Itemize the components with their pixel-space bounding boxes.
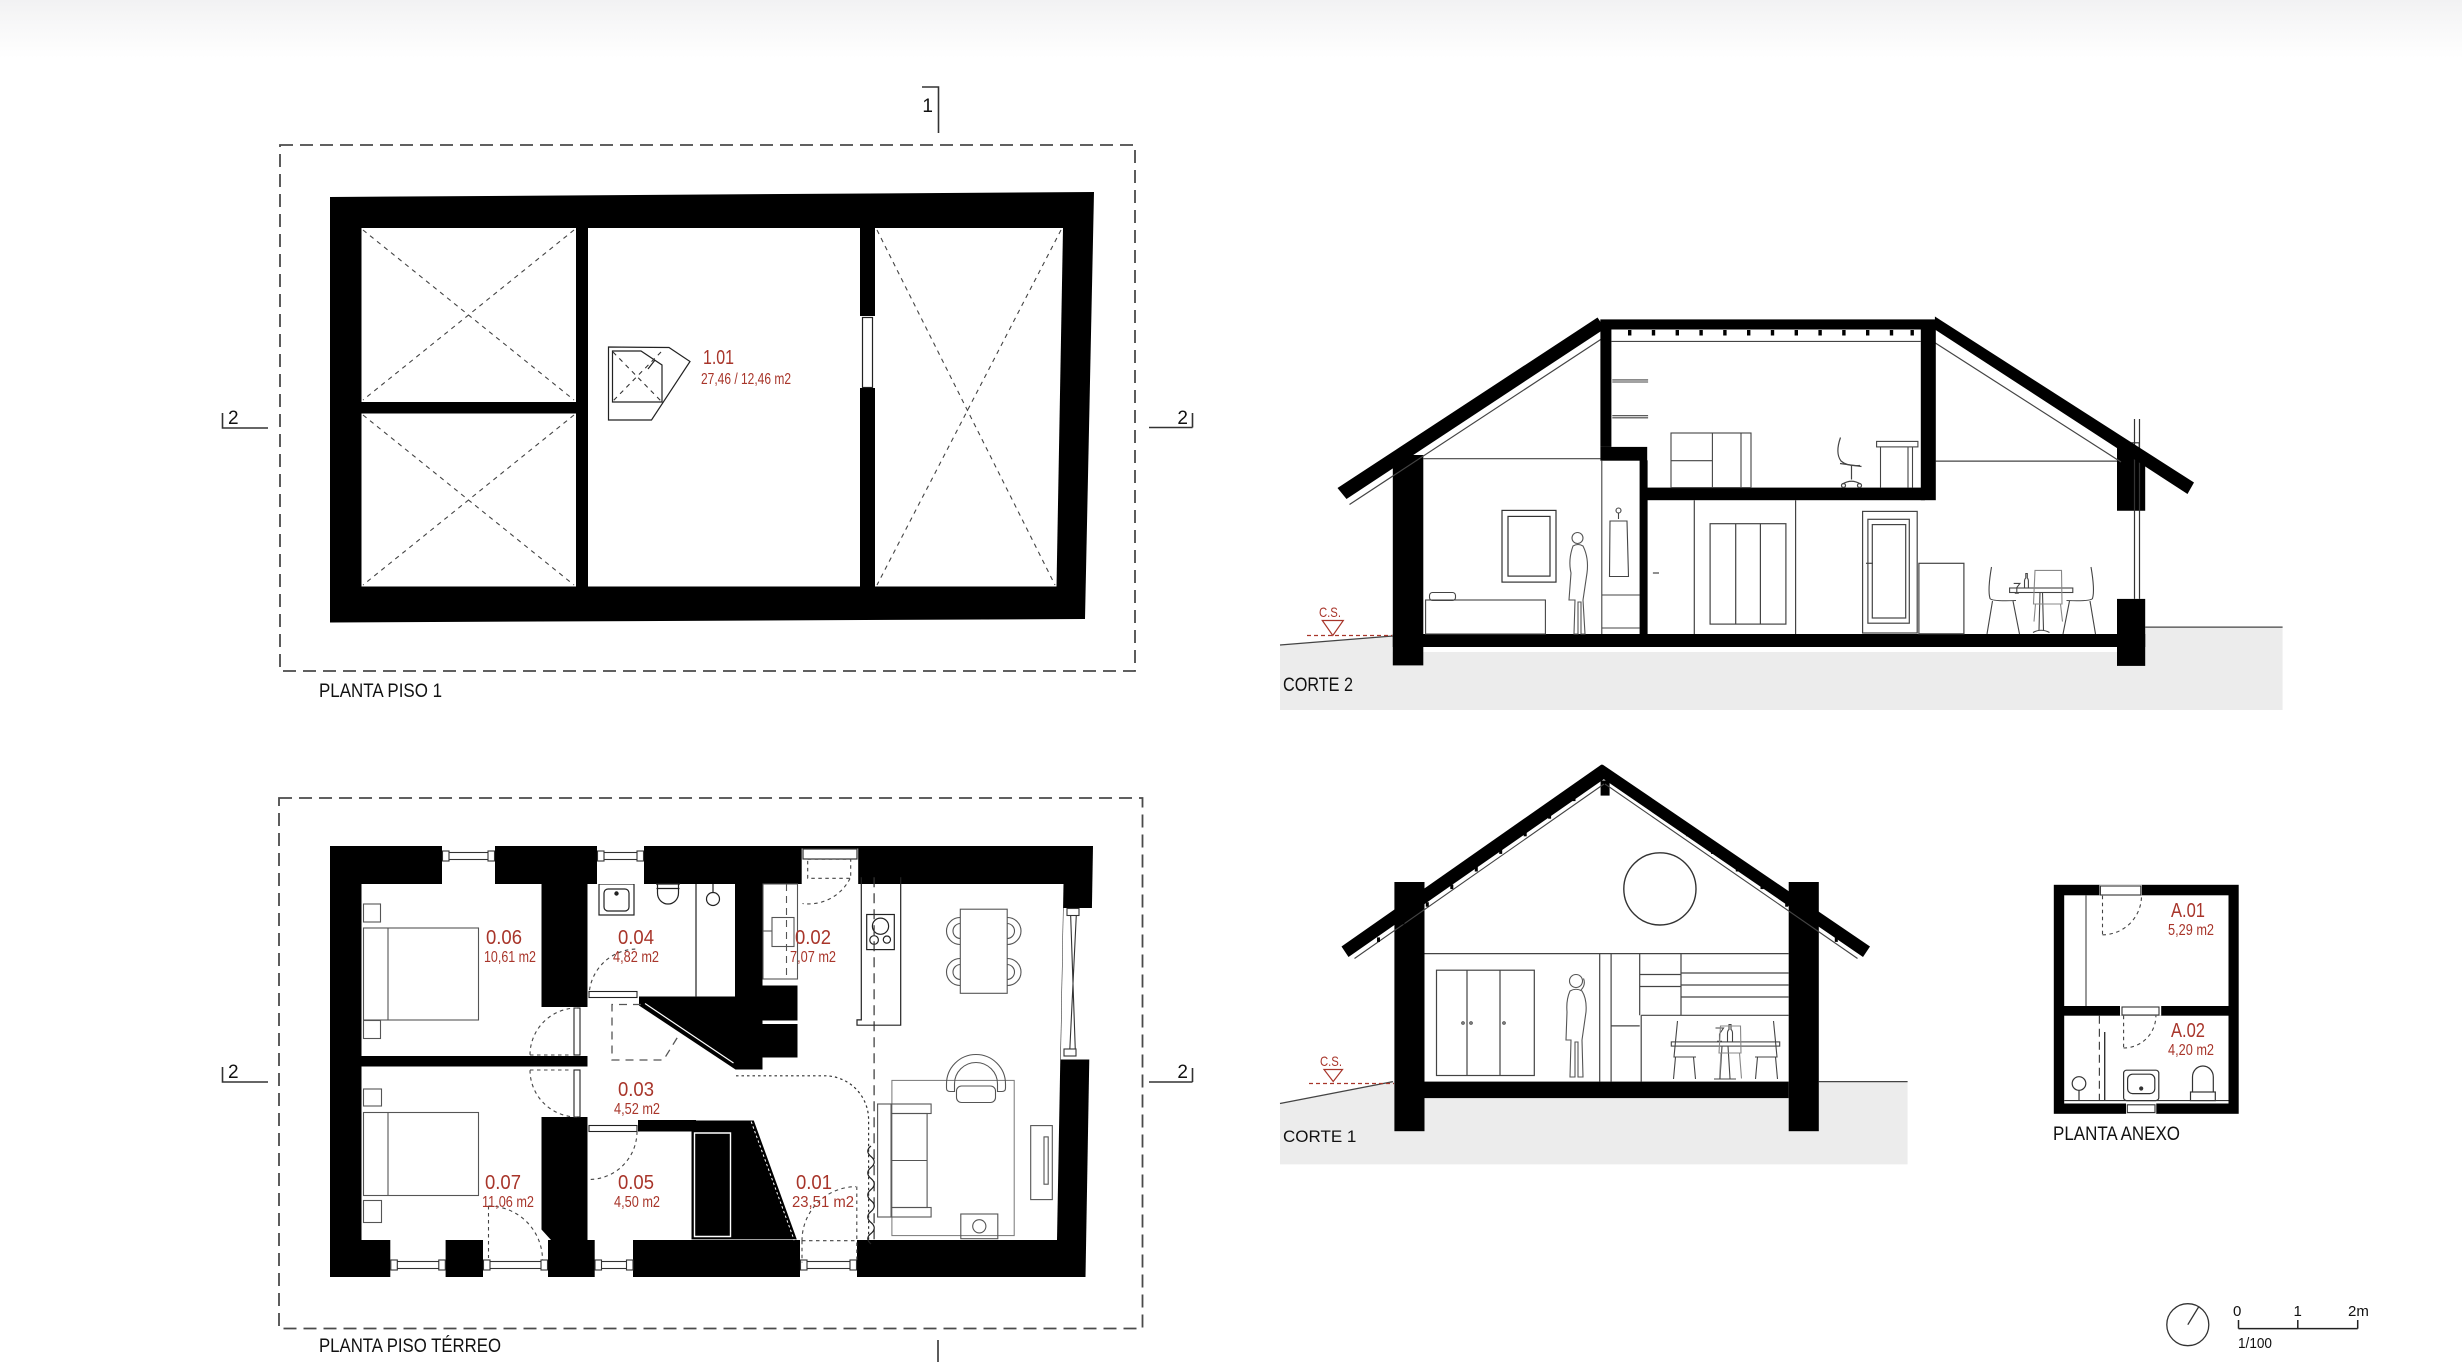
svg-text:4,82 m2: 4,82 m2: [613, 949, 659, 966]
svg-text:1: 1: [922, 96, 933, 117]
svg-text:2: 2: [1177, 1062, 1188, 1083]
svg-text:0.02: 0.02: [795, 927, 831, 949]
svg-text:10,61 m2: 10,61 m2: [484, 949, 536, 966]
svg-text:0.04: 0.04: [618, 927, 654, 949]
svg-text:PLANTA PISO TÉRREO: PLANTA PISO TÉRREO: [319, 1336, 501, 1357]
svg-text:11,06 m2: 11,06 m2: [482, 1194, 534, 1211]
svg-text:5,29 m2: 5,29 m2: [2168, 922, 2214, 939]
svg-text:4,20 m2: 4,20 m2: [2168, 1042, 2214, 1059]
svg-text:2: 2: [228, 408, 239, 429]
svg-text:7,07 m2: 7,07 m2: [790, 949, 836, 966]
svg-text:2: 2: [1177, 408, 1188, 429]
svg-text:4,50 m2: 4,50 m2: [614, 1194, 660, 1211]
svg-text:C.S.: C.S.: [1320, 1053, 1342, 1069]
svg-text:0.06: 0.06: [486, 927, 522, 949]
svg-text:1.01: 1.01: [703, 347, 734, 369]
svg-text:C.S.: C.S.: [1319, 604, 1341, 620]
svg-text:1/100: 1/100: [2238, 1335, 2272, 1352]
svg-text:0.07: 0.07: [485, 1172, 521, 1194]
svg-text:A.02: A.02: [2171, 1020, 2205, 1042]
svg-text:0.05: 0.05: [618, 1172, 654, 1194]
svg-text:2: 2: [228, 1062, 239, 1083]
svg-text:27,46 / 12,46 m2: 27,46 / 12,46 m2: [701, 371, 791, 388]
svg-text:PLANTA ANEXO: PLANTA ANEXO: [2053, 1124, 2180, 1145]
svg-text:A.01: A.01: [2171, 900, 2205, 922]
svg-text:0.01: 0.01: [796, 1172, 832, 1194]
svg-text:1: 1: [2294, 1303, 2302, 1320]
svg-text:0.03: 0.03: [618, 1079, 654, 1101]
svg-text:2m: 2m: [2348, 1303, 2369, 1320]
svg-text:CORTE 1: CORTE 1: [1283, 1127, 1356, 1146]
svg-text:CORTE 2: CORTE 2: [1283, 675, 1353, 696]
svg-text:PLANTA PISO 1: PLANTA PISO 1: [319, 681, 442, 702]
svg-text:4,52 m2: 4,52 m2: [614, 1101, 660, 1118]
svg-text:0: 0: [2233, 1303, 2241, 1320]
svg-text:23,51 m2: 23,51 m2: [792, 1194, 854, 1211]
